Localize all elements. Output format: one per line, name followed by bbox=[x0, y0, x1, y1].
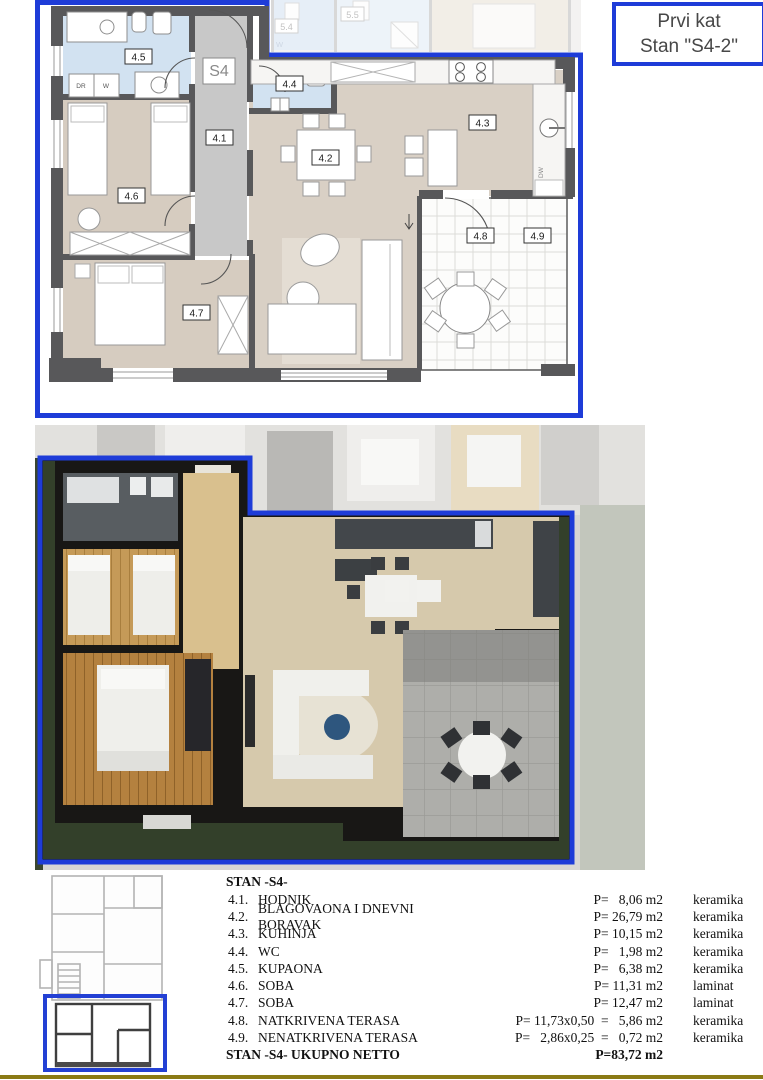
unit-name: Stan "S4-2" bbox=[640, 34, 738, 59]
kitchen-counter-3d bbox=[335, 519, 493, 549]
terrace-table-3d bbox=[458, 731, 506, 779]
svg-text:4.7: 4.7 bbox=[190, 309, 204, 320]
glass-door-living bbox=[281, 370, 387, 380]
row-material: keramika bbox=[663, 961, 763, 977]
kitchen-stool-2 bbox=[405, 158, 423, 176]
window-bedroom-2-south bbox=[113, 368, 173, 382]
row-name: WC bbox=[258, 944, 480, 960]
window-bedroom-2 bbox=[51, 288, 63, 332]
footer-divider bbox=[0, 1075, 763, 1079]
floorplan-2d: 5.4 5.5 W bbox=[35, 0, 583, 418]
terrace-chair bbox=[457, 334, 474, 348]
row-number: 4.2. bbox=[226, 909, 258, 925]
kitchen-island bbox=[428, 130, 457, 186]
room-label-43: 4.3 bbox=[469, 115, 496, 130]
terrace-shadow bbox=[403, 630, 559, 682]
unit-outline-key bbox=[56, 1004, 150, 1066]
terrace-table bbox=[440, 283, 490, 333]
chair bbox=[303, 114, 319, 128]
chair bbox=[329, 114, 345, 128]
location-miniplan bbox=[38, 872, 178, 1074]
side-table bbox=[78, 208, 100, 230]
plan-sheet: 5.4 5.5 W bbox=[0, 0, 763, 1080]
room-label-41: 4.1 bbox=[206, 130, 233, 145]
row-name: KUPAONA bbox=[258, 961, 480, 977]
kitchen-stool-1 bbox=[405, 136, 423, 154]
svg-text:5.4: 5.4 bbox=[280, 22, 293, 32]
row-material: keramika bbox=[663, 1030, 763, 1046]
adjacent-unit-faded: 5.4 5.5 W bbox=[271, 0, 581, 52]
row-material: keramika bbox=[663, 892, 763, 908]
row-number: 4.4. bbox=[226, 944, 258, 960]
unit-title-box: Prvi kat Stan "S4-2" bbox=[612, 2, 763, 66]
stove bbox=[449, 60, 493, 83]
pillow bbox=[71, 106, 104, 122]
row-name: NATKRIVENA TERASA bbox=[258, 1013, 480, 1029]
row-number: 4.5. bbox=[226, 961, 258, 977]
kitchen-counter-right bbox=[533, 84, 565, 196]
row-number: 4.3. bbox=[226, 926, 258, 942]
label-w: W bbox=[103, 83, 110, 90]
svg-text:4.2: 4.2 bbox=[319, 154, 333, 165]
room-label-44: 4.4 bbox=[276, 76, 303, 91]
render-3d bbox=[35, 425, 645, 870]
room-label-46: 4.6 bbox=[118, 188, 145, 203]
toilet bbox=[132, 12, 146, 32]
row-number: 4.7. bbox=[226, 995, 258, 1011]
wardrobe bbox=[70, 232, 190, 255]
row-area: P= 8,06 m2 bbox=[480, 892, 663, 908]
room-label-42: 4.2 bbox=[312, 150, 339, 165]
room-label-47: 4.7 bbox=[183, 305, 210, 320]
adjacent-label-w: W bbox=[276, 40, 284, 49]
building-outline-faded bbox=[40, 876, 162, 1000]
row-material: keramika bbox=[663, 909, 763, 925]
window-bedroom-1 bbox=[51, 120, 63, 168]
bathtub bbox=[67, 12, 127, 42]
room-label-48: 4.8 bbox=[467, 228, 494, 243]
row-area: P= 6,38 m2 bbox=[480, 961, 663, 977]
row-number: 4.8. bbox=[226, 1013, 258, 1029]
pillow bbox=[98, 266, 129, 283]
entrance-door-3d bbox=[195, 465, 231, 473]
row-material: keramika bbox=[663, 926, 763, 942]
sofa bbox=[362, 240, 402, 360]
adjacent-room-label-55: 5.5 bbox=[341, 7, 364, 21]
dishwasher bbox=[535, 180, 563, 196]
row-material: laminat bbox=[663, 978, 763, 994]
terrace-chair bbox=[457, 272, 474, 286]
chair bbox=[281, 146, 295, 162]
window-bath bbox=[51, 46, 63, 76]
area-table: STAN -S4- 4.1.HODNIKP= 8,06 m2keramika4.… bbox=[226, 872, 763, 1064]
bidet bbox=[153, 12, 171, 34]
svg-text:4.1: 4.1 bbox=[213, 134, 227, 145]
sink-counter bbox=[135, 72, 179, 98]
unit-label-s4: S4 bbox=[203, 58, 235, 84]
svg-text:4.9: 4.9 bbox=[531, 232, 545, 243]
row-area: P= 26,79 m2 bbox=[480, 909, 663, 925]
row-name: KUHINJA bbox=[258, 926, 480, 942]
row-name: SOBA bbox=[258, 978, 480, 994]
sofa-chaise bbox=[268, 304, 356, 354]
pillow bbox=[132, 266, 163, 283]
adjacent-room-label-54: 5.4 bbox=[275, 19, 298, 33]
svg-text:4.3: 4.3 bbox=[476, 119, 490, 130]
floor-name: Prvi kat bbox=[657, 9, 720, 34]
lounge-chair-3d bbox=[385, 580, 409, 602]
table-title: STAN -S4- bbox=[226, 872, 763, 891]
row-area: P= 2,86x0,25 = 0,72 m2 bbox=[480, 1030, 663, 1046]
nightstand bbox=[75, 264, 90, 278]
room-label-49: 4.9 bbox=[524, 228, 551, 243]
row-area: P= 11,73x0,50 = 5,86 m2 bbox=[480, 1013, 663, 1029]
hallway-3d bbox=[183, 473, 239, 669]
row-area: P= 11,31 m2 bbox=[480, 978, 663, 994]
entry-step-3d bbox=[143, 815, 191, 829]
row-number: 4.1. bbox=[226, 892, 258, 908]
tv-wall-3d bbox=[245, 675, 255, 747]
row-name: NENATKRIVENA TERASA bbox=[258, 1030, 480, 1046]
row-area: P= 10,15 m2 bbox=[480, 926, 663, 942]
row-material: laminat bbox=[663, 995, 763, 1011]
room-label-45: 4.5 bbox=[125, 49, 152, 64]
row-material: keramika bbox=[663, 944, 763, 960]
total-label: STAN -S4- UKUPNO NETTO bbox=[226, 1047, 480, 1063]
row-number: 4.9. bbox=[226, 1030, 258, 1046]
terrace-door-gap bbox=[443, 190, 489, 199]
svg-text:S4: S4 bbox=[209, 63, 229, 80]
pillow bbox=[154, 106, 187, 122]
chair bbox=[357, 146, 371, 162]
svg-text:4.8: 4.8 bbox=[474, 232, 488, 243]
row-area: P= 1,98 m2 bbox=[480, 944, 663, 960]
row-name: SOBA bbox=[258, 995, 480, 1011]
svg-text:4.6: 4.6 bbox=[125, 192, 139, 203]
row-material: keramika bbox=[663, 1013, 763, 1029]
svg-text:4.4: 4.4 bbox=[283, 80, 297, 91]
row-number: 4.6. bbox=[226, 978, 258, 994]
row-area: P= 12,47 m2 bbox=[480, 995, 663, 1011]
svg-text:5.5: 5.5 bbox=[346, 10, 359, 20]
chair bbox=[303, 182, 319, 196]
total-area: P=83,72 m2 bbox=[480, 1047, 663, 1063]
table-rows: 4.1.HODNIKP= 8,06 m2keramika4.2.BLAGOVAO… bbox=[226, 891, 763, 1064]
lounge-chair-3d bbox=[417, 580, 441, 602]
pouf-3d bbox=[324, 714, 350, 740]
svg-text:4.5: 4.5 bbox=[132, 53, 146, 64]
chair bbox=[329, 182, 345, 196]
label-dr: DR bbox=[76, 83, 86, 90]
label-dw: DW bbox=[538, 166, 545, 178]
